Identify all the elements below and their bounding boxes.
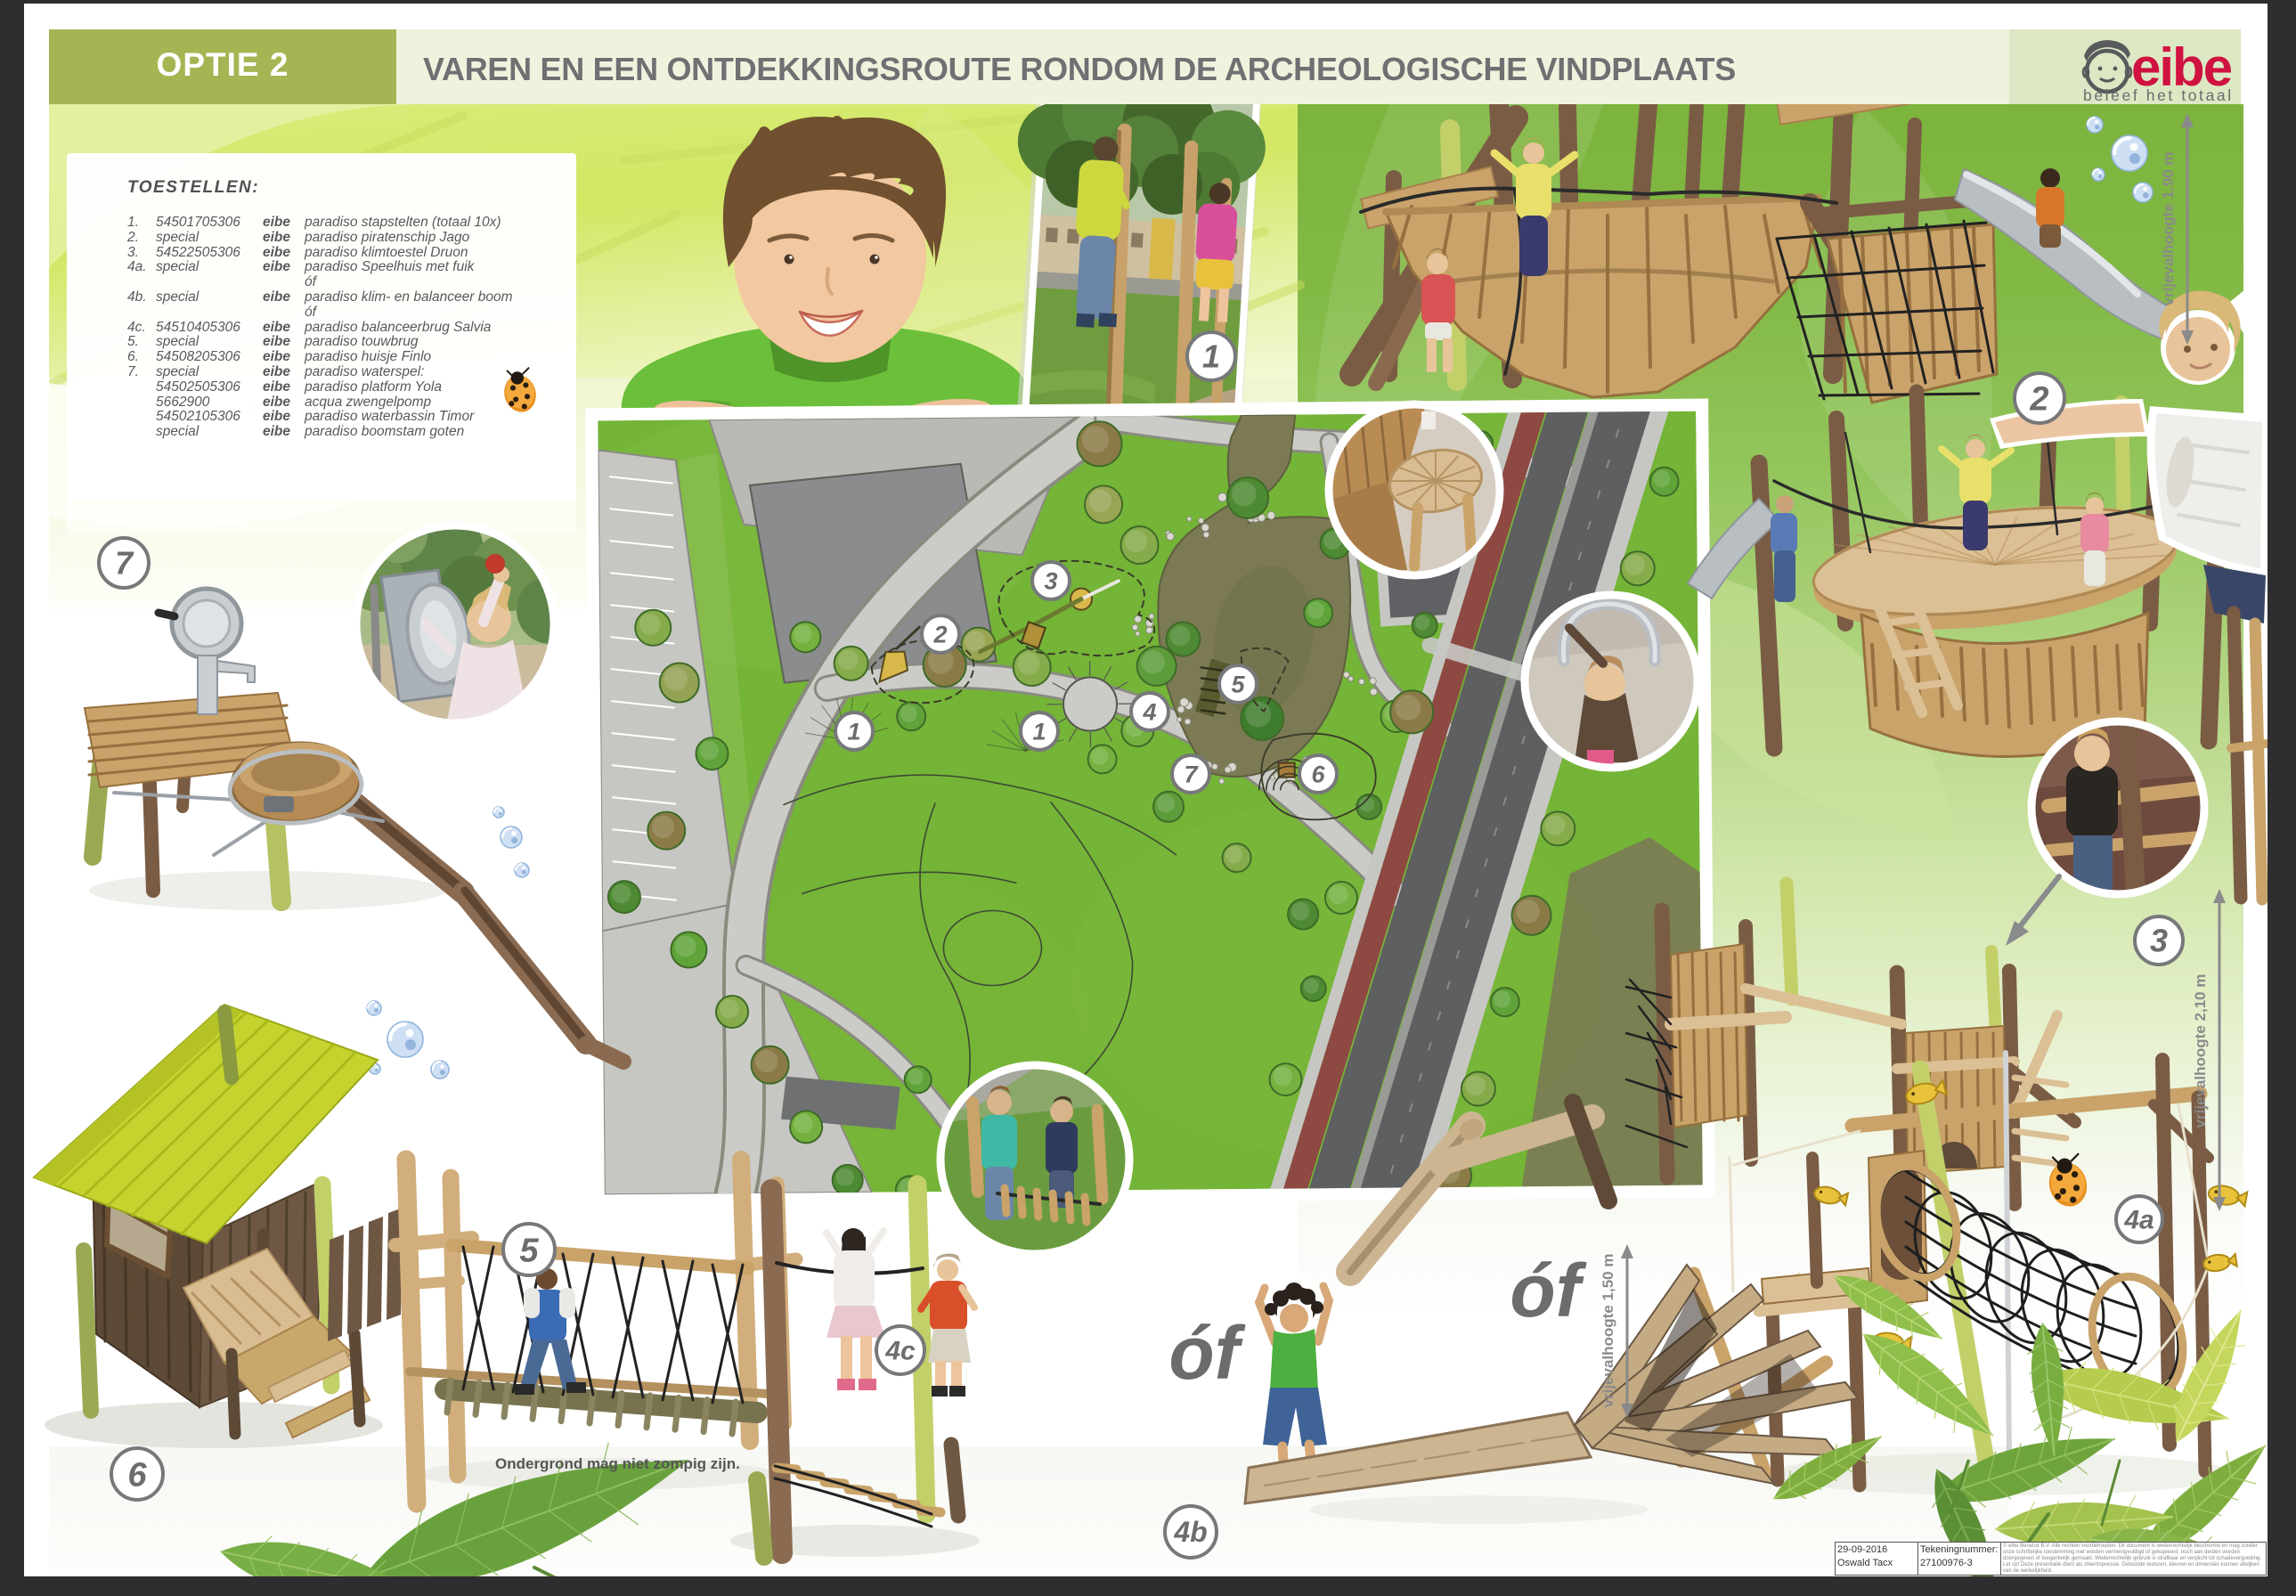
svg-text:5: 5: [1231, 671, 1245, 697]
svg-text:6: 6: [1311, 761, 1325, 787]
svg-text:7: 7: [1184, 761, 1199, 787]
svg-text:vrijevalhoogte 1,50 m: vrijevalhoogte 1,50 m: [1600, 1254, 1616, 1408]
svg-text:óf: óf: [1168, 1311, 1245, 1395]
svg-text:1: 1: [1202, 338, 1220, 375]
svg-text:4c: 4c: [884, 1337, 916, 1366]
svg-text:vrijevalhoogte 2,10 m: vrijevalhoogte 2,10 m: [2192, 974, 2209, 1128]
svg-text:5: 5: [519, 1232, 539, 1269]
svg-text:7: 7: [115, 545, 134, 582]
svg-text:1: 1: [847, 718, 860, 745]
svg-text:4b: 4b: [1173, 1516, 1207, 1548]
svg-text:4a: 4a: [2123, 1206, 2154, 1235]
svg-text:3: 3: [1044, 567, 1057, 594]
svg-text:1: 1: [1032, 718, 1046, 745]
svg-text:2: 2: [932, 621, 947, 647]
svg-text:vrijevalhoogte 1.90 m: vrijevalhoogte 1.90 m: [2160, 152, 2177, 306]
svg-text:3: 3: [2150, 923, 2168, 959]
svg-text:óf: óf: [1510, 1249, 1586, 1332]
svg-text:6: 6: [127, 1456, 147, 1494]
svg-text:beleef het totaal: beleef het totaal: [2083, 86, 2234, 104]
svg-text:4: 4: [1142, 698, 1156, 725]
svg-text:Ondergrond mag niet zompig zij: Ondergrond mag niet zompig zijn.: [495, 1455, 740, 1472]
svg-text:2: 2: [2029, 380, 2048, 418]
